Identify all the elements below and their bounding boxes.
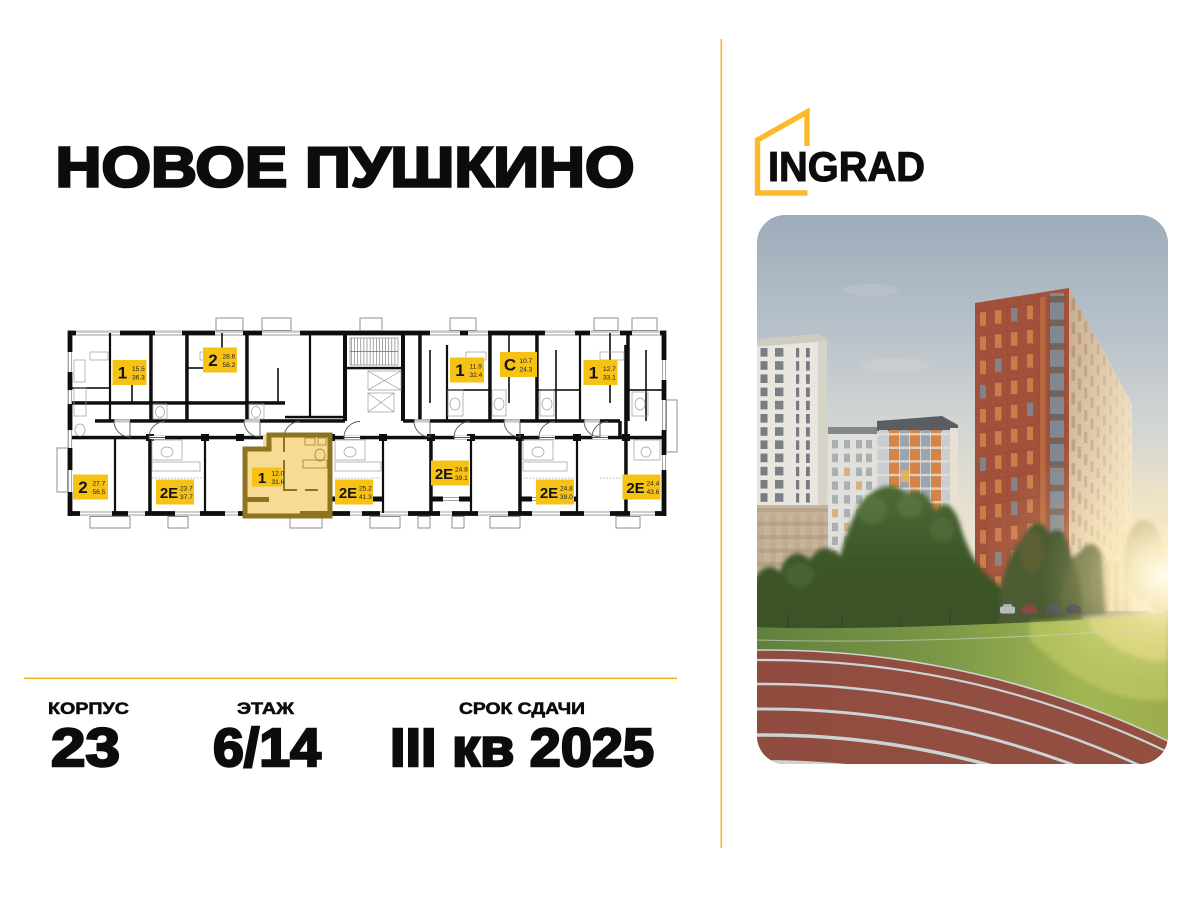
svg-text:43.6: 43.6 [647,489,660,496]
svg-text:1: 1 [118,364,127,383]
svg-text:24.3: 24.3 [520,366,533,373]
svg-text:КОРПУС: КОРПУС [48,700,129,718]
svg-text:41.3: 41.3 [359,494,372,501]
svg-text:III кв 2025: III кв 2025 [390,718,654,778]
svg-text:2Е: 2Е [339,485,357,502]
svg-text:СРОК СДАЧИ: СРОК СДАЧИ [459,700,585,718]
svg-text:INGRAD: INGRAD [768,143,925,190]
svg-text:58.2: 58.2 [223,362,236,369]
svg-text:2Е: 2Е [540,485,558,502]
svg-text:33.1: 33.1 [603,374,616,381]
svg-text:36.3: 36.3 [132,374,145,381]
svg-text:ЭТАЖ: ЭТАЖ [237,700,294,718]
svg-text:11.9: 11.9 [470,364,483,371]
svg-text:23.7: 23.7 [180,486,193,493]
svg-text:56.5: 56.5 [93,489,106,496]
svg-text:28.6: 28.6 [223,354,236,361]
svg-text:2Е: 2Е [626,480,644,497]
svg-text:25.2: 25.2 [359,486,372,493]
svg-text:C: C [504,356,516,375]
svg-text:39.1: 39.1 [455,475,468,482]
svg-text:31.6: 31.6 [272,479,285,486]
svg-text:32.4: 32.4 [470,372,483,379]
svg-text:2: 2 [208,351,217,370]
svg-text:12.7: 12.7 [603,366,616,373]
svg-text:24.8: 24.8 [560,486,573,493]
svg-text:6/14: 6/14 [213,718,321,778]
svg-text:39.0: 39.0 [560,494,573,501]
svg-text:10.7: 10.7 [520,358,533,365]
svg-text:12.0: 12.0 [272,471,285,478]
svg-text:27.7: 27.7 [93,481,106,488]
svg-text:2: 2 [78,478,87,497]
svg-text:2Е: 2Е [435,466,453,483]
svg-text:15.5: 15.5 [132,366,145,373]
svg-text:НОВОЕ ПУШКИНО: НОВОЕ ПУШКИНО [56,135,635,199]
svg-text:37.7: 37.7 [180,494,193,501]
svg-text:1: 1 [258,470,266,487]
svg-text:2Е: 2Е [160,485,178,502]
svg-text:1: 1 [455,361,464,380]
svg-text:23: 23 [51,718,120,778]
svg-text:24.8: 24.8 [455,467,468,474]
svg-text:24.4: 24.4 [647,481,660,488]
svg-text:1: 1 [589,364,598,383]
